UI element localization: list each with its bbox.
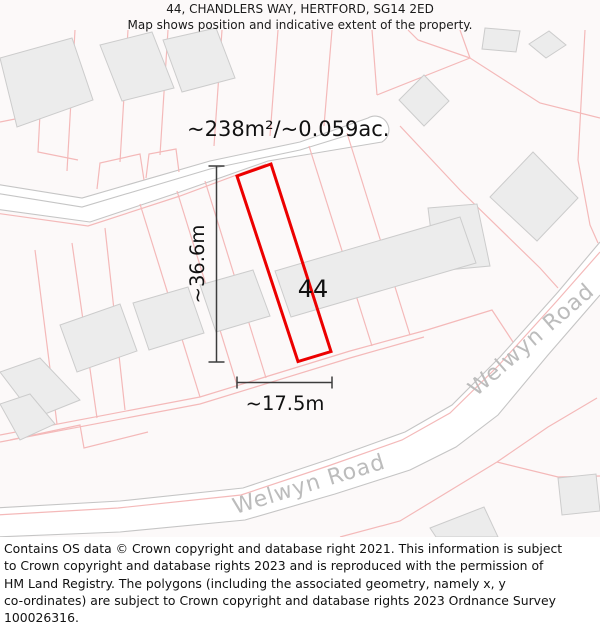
copyright-line: Contains OS data © Crown copyright and d… (4, 540, 600, 557)
copyright-notice: Contains OS data © Crown copyright and d… (0, 537, 600, 625)
page-title: 44, CHANDLERS WAY, HERTFORD, SG14 2ED (0, 2, 600, 18)
map-header: 44, CHANDLERS WAY, HERTFORD, SG14 2ED Ma… (0, 0, 600, 33)
property-map-page: ~238m²/~0.059ac. 44 ~36.6m ~17.5m Welwyn… (0, 0, 600, 625)
copyright-line: HM Land Registry. The polygons (includin… (4, 575, 600, 592)
height-dimension-label: ~36.6m (186, 225, 209, 304)
copyright-line: 100026316. (4, 609, 600, 625)
plot-number-label: 44 (298, 275, 329, 303)
area-label: ~238m²/~0.059ac. (187, 117, 389, 141)
page-subtitle: Map shows position and indicative extent… (0, 18, 600, 34)
map-canvas: ~238m²/~0.059ac. 44 ~36.6m ~17.5m Welwyn… (0, 0, 600, 537)
copyright-line: to Crown copyright and database rights 2… (4, 557, 600, 574)
copyright-line: co-ordinates) are subject to Crown copyr… (4, 592, 600, 609)
width-dimension-label: ~17.5m (246, 392, 325, 415)
